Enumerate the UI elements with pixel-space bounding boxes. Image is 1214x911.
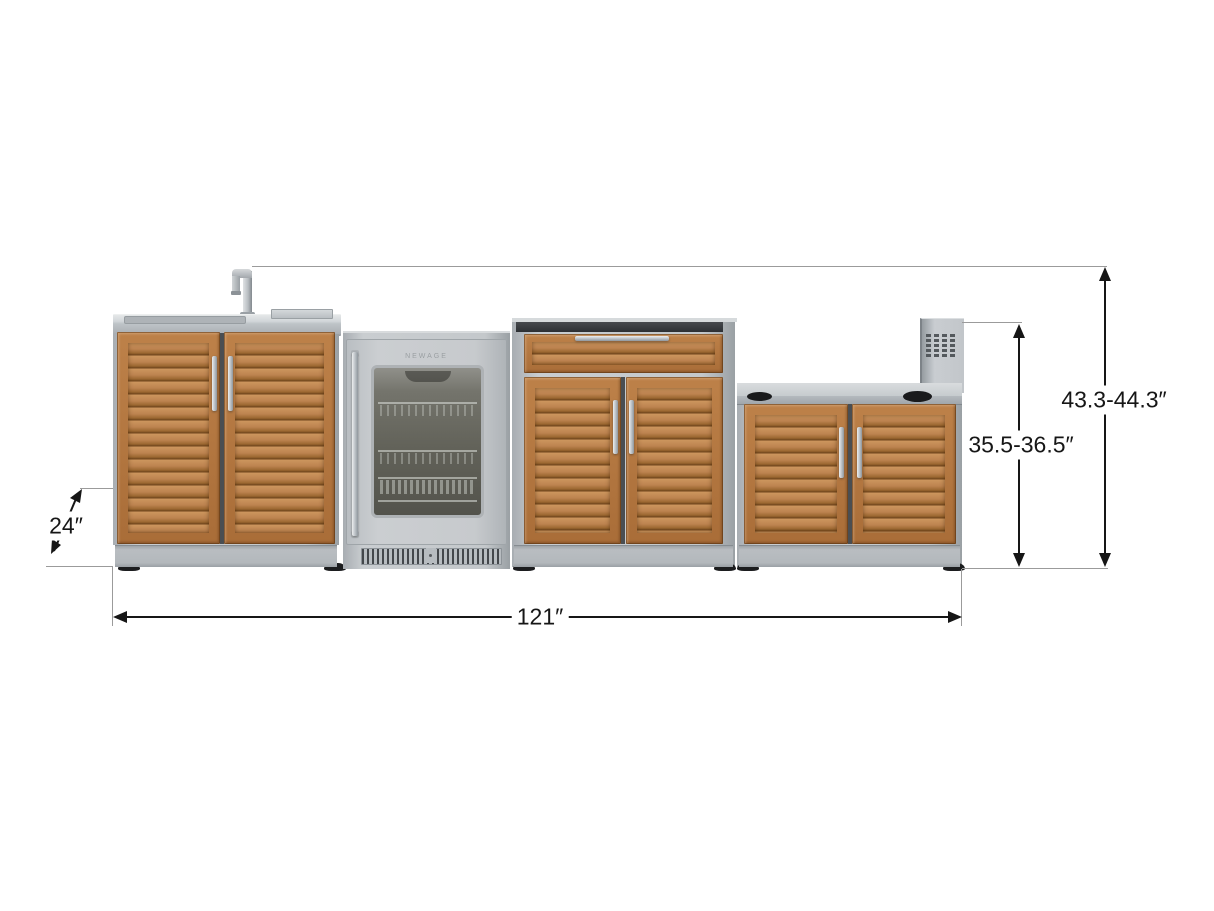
dimension-label-overall-width: 121″ <box>512 603 569 632</box>
counter-accessory <box>271 309 333 319</box>
bar-countertop-dark <box>516 322 723 332</box>
drawer-handle <box>575 336 669 341</box>
dimension-label-faucet-height: 43.3-44.3″ <box>1056 386 1171 415</box>
door-handle <box>857 427 862 478</box>
grill-cabinet-right-door <box>852 404 956 544</box>
fridge-glass-window <box>371 365 484 518</box>
bar-cabinet-plinth <box>514 545 733 567</box>
outdoor-kitchen-dimension-diagram: NEWAGE <box>0 0 1214 911</box>
grease-cup-cutout <box>747 392 772 401</box>
bar-cabinet-right-door <box>626 377 723 544</box>
bar-cabinet-left-door <box>524 377 621 544</box>
back-panel-vents <box>926 334 958 337</box>
grease-cup-cutout <box>903 391 932 402</box>
door-handle <box>629 400 634 454</box>
sink-basin <box>124 316 246 324</box>
door-handle <box>228 356 233 411</box>
grill-cabinet-left-door <box>744 404 848 544</box>
grill-cabinet-plinth <box>739 545 960 567</box>
fridge-handle <box>352 352 358 536</box>
sink-cabinet-right-door <box>224 332 335 544</box>
door-handle <box>613 400 618 454</box>
sink-cabinet-plinth <box>115 545 337 567</box>
dimension-label-depth: 24″ <box>44 512 88 541</box>
sink-cabinet-left-door <box>117 332 220 544</box>
fridge-interior-fan <box>405 371 451 382</box>
door-handle <box>839 427 844 478</box>
dimension-label-counter-height: 35.5-36.5″ <box>963 431 1078 460</box>
fridge-brand-logo: NEWAGE <box>346 353 507 360</box>
door-handle <box>212 356 217 411</box>
